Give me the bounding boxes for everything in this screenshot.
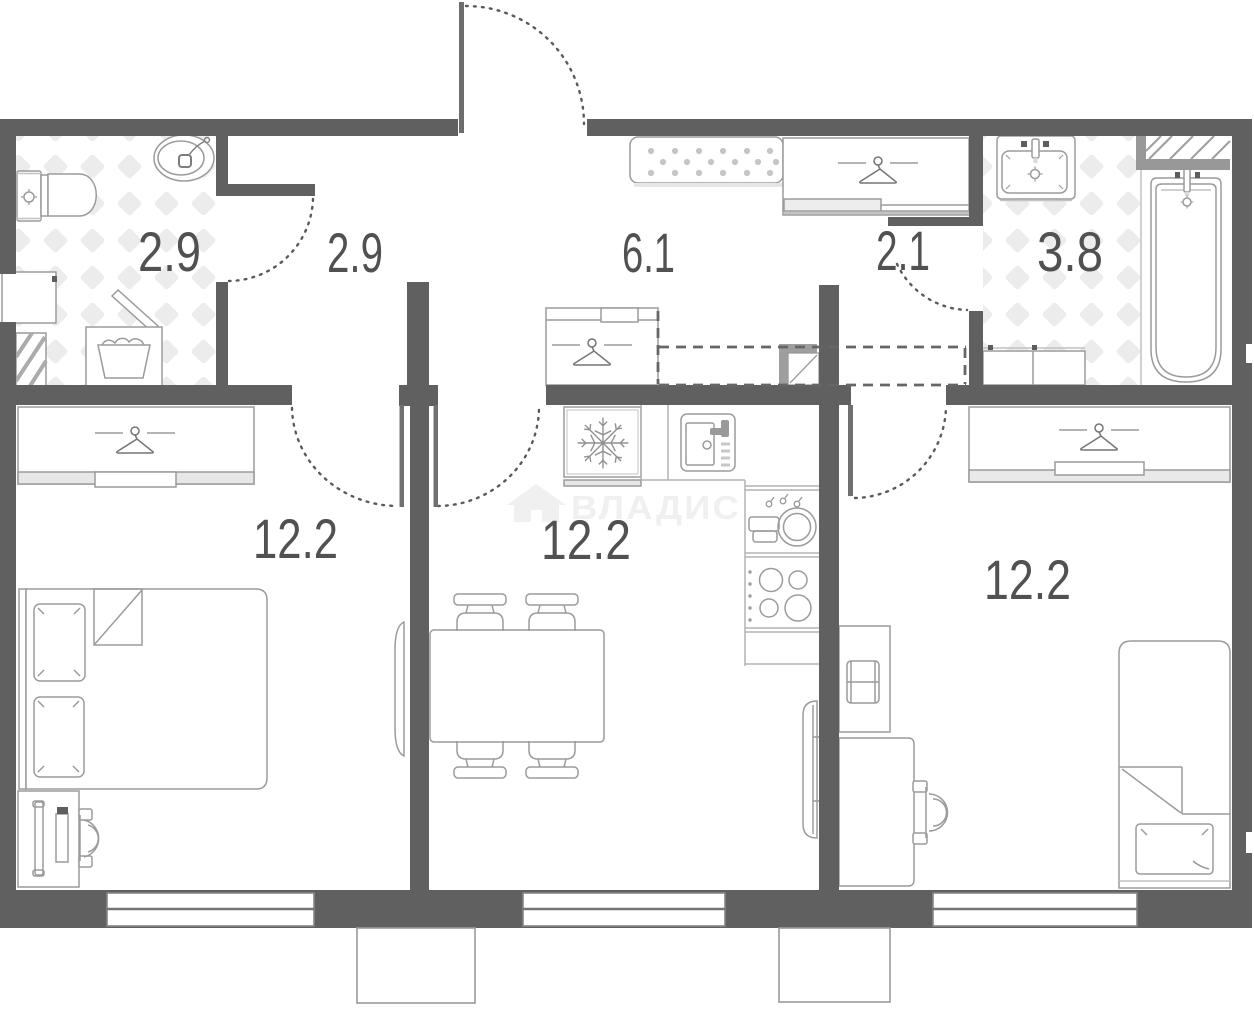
svg-text:12.2: 12.2	[253, 507, 338, 570]
svg-text:12.2: 12.2	[984, 548, 1071, 611]
svg-text:2.1: 2.1	[876, 219, 930, 282]
svg-text:2.9: 2.9	[327, 221, 383, 284]
svg-text:2.9: 2.9	[138, 220, 201, 283]
svg-text:12.2: 12.2	[541, 508, 631, 571]
svg-text:6.1: 6.1	[622, 221, 675, 284]
svg-text:3.8: 3.8	[1037, 220, 1103, 283]
